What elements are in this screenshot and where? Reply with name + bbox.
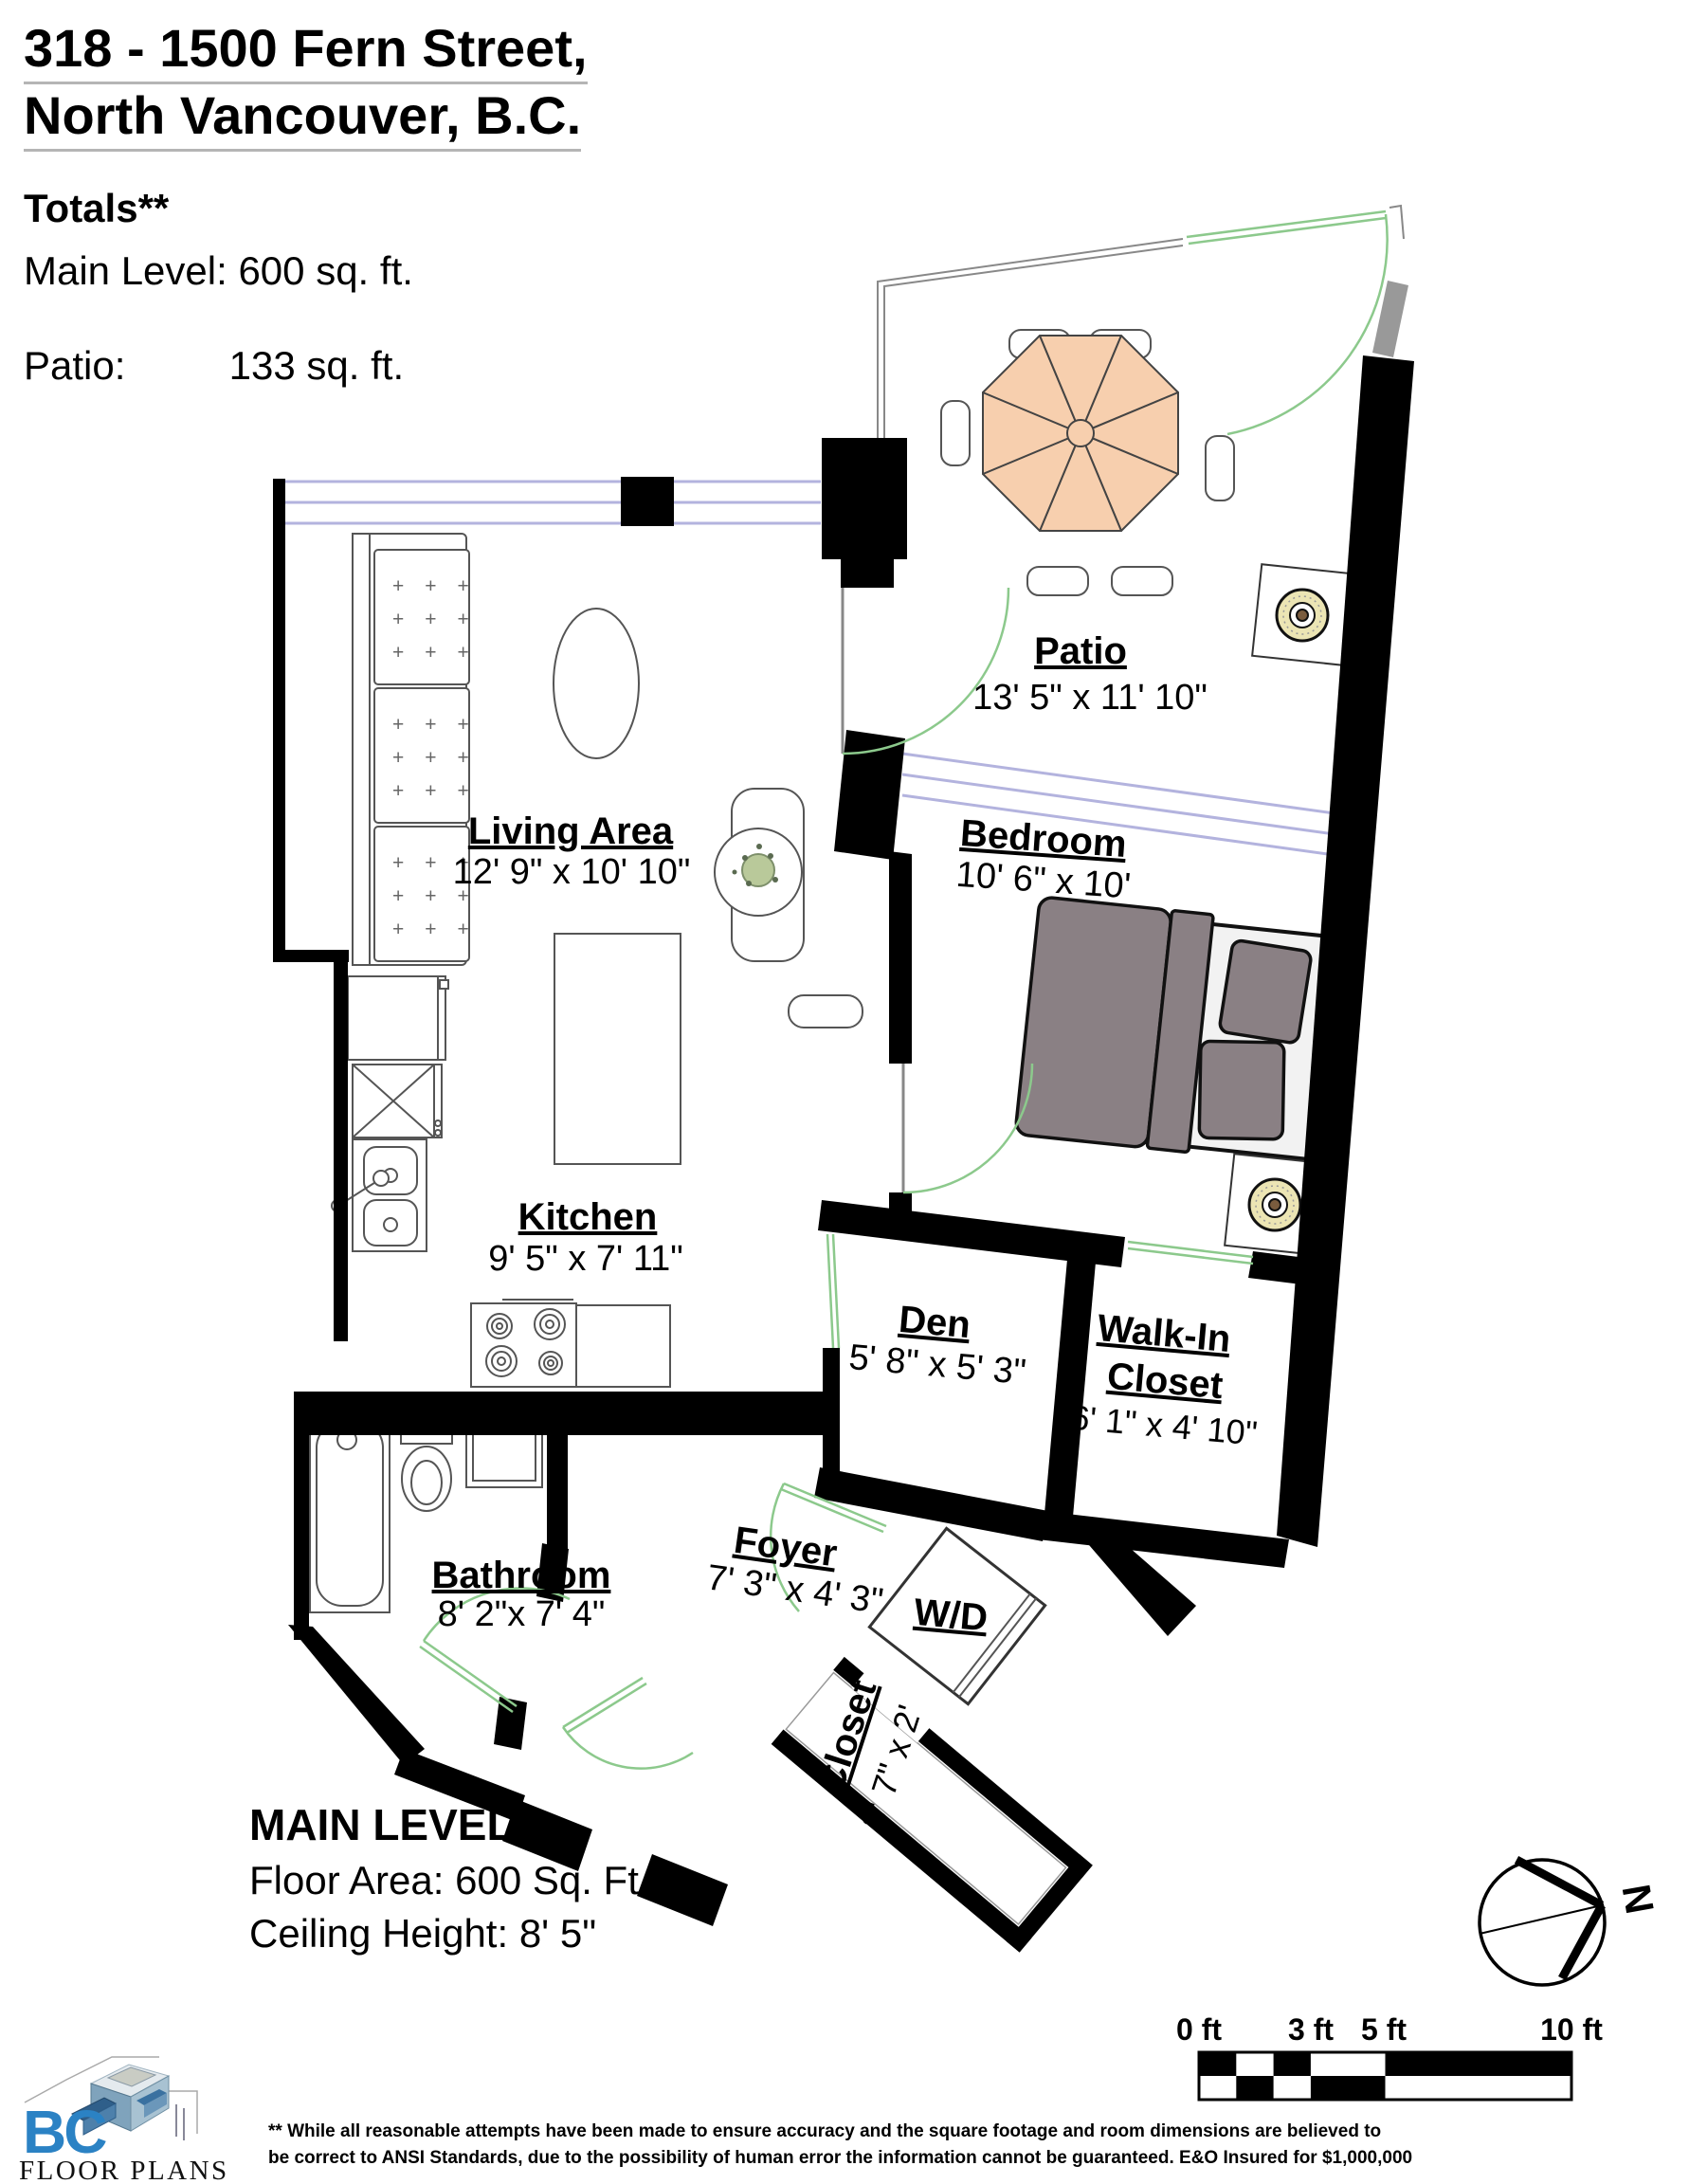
closet-interior (786, 1673, 1065, 1924)
scale-label-3: 3 ft (1288, 2012, 1334, 2047)
scale-label-0: 0 ft (1176, 2012, 1222, 2047)
room-label-patio: Patio (1034, 630, 1127, 672)
pillow (1199, 1041, 1284, 1139)
svg-text:+++: +++ (392, 714, 490, 736)
room-label-den: Den (898, 1299, 972, 1346)
living-patio-door-arc (843, 588, 1008, 754)
patio-chair (941, 401, 970, 465)
furniture-layer: +++++++++ +++++++++ +++++++++ (310, 330, 1353, 1924)
room-dims-walkin: 6' 1" x 4' 10" (1069, 1398, 1259, 1453)
disclaimer-line1: ** While all reasonable attempts have be… (268, 2121, 1381, 2142)
north-label: N (1614, 1881, 1663, 1917)
scale-label-10: 10 ft (1540, 2012, 1603, 2047)
fridge (348, 976, 448, 1060)
room-label-walkin-1: Walk-In (1096, 1307, 1232, 1360)
level-floor-area: Floor Area: 600 Sq. Ft. (249, 1858, 650, 1903)
room-dims-living: 12' 9" x 10' 10" (453, 852, 691, 892)
svg-text:+++: +++ (392, 919, 490, 940)
patio-umbrella (983, 336, 1178, 531)
patio-chair (1027, 567, 1088, 595)
svg-text:+++: +++ (392, 747, 490, 769)
disclaimer-line2: be correct to ANSI Standards, due to the… (268, 2148, 1412, 2169)
scale-label-5: 5 ft (1361, 2012, 1407, 2047)
bathtub (310, 1411, 390, 1612)
bedroom-door-arc (903, 1064, 1032, 1192)
level-title: MAIN LEVEL (249, 1799, 650, 1850)
room-dims-bathroom: 8' 2"x 7' 4" (438, 1594, 606, 1634)
plant-table (715, 789, 804, 961)
stove (471, 1300, 576, 1387)
room-label-bathroom: Bathroom (432, 1555, 611, 1596)
logo-floor-plans-text: FLOOR PLANS (19, 2156, 229, 2184)
sofa: +++++++++ +++++++++ +++++++++ (353, 534, 490, 965)
bed (1015, 897, 1354, 1167)
level-summary: MAIN LEVEL Floor Area: 600 Sq. Ft. Ceili… (249, 1799, 650, 1956)
compass-circle (1480, 1860, 1605, 1985)
svg-text:+++: +++ (392, 642, 490, 664)
room-dims-kitchen: 9' 5" x 7' 11" (488, 1239, 683, 1279)
svg-text:+++: +++ (392, 575, 490, 597)
nightstand (1252, 564, 1353, 665)
gray-wall-segment (1372, 281, 1408, 357)
room-dims-patio: 13' 5" x 11' 10" (972, 678, 1208, 718)
coffee-table (554, 609, 639, 758)
kitchen-counter (576, 1305, 670, 1387)
patio-chair (1206, 436, 1234, 500)
north-compass: N (1480, 1860, 1662, 1985)
dining-chair (789, 995, 863, 1028)
entry-door-arc (563, 1727, 693, 1769)
room-label-wd: W/D (912, 1592, 989, 1640)
patio-chair (1112, 567, 1172, 595)
patio-dining-set (941, 330, 1234, 595)
room-label-walkin-2: Closet (1105, 1356, 1225, 1407)
svg-text:+++: +++ (392, 609, 490, 630)
pillow (1219, 939, 1312, 1044)
pantry-cabinet (353, 1065, 442, 1137)
svg-text:+++: +++ (392, 780, 490, 802)
floor-plan-page: 318 - 1500 Fern Street, North Vancouver,… (0, 0, 1689, 2184)
scale-bar-segments (1199, 2052, 1571, 2100)
level-ceiling-height: Ceiling Height: 8' 5" (249, 1911, 650, 1956)
room-dims-den: 5' 8" x 5' 3" (847, 1338, 1027, 1392)
scale-bar: 0 ft 3 ft 5 ft 10 ft (1176, 2012, 1603, 2100)
room-label-living: Living Area (468, 810, 674, 852)
room-label-kitchen: Kitchen (518, 1196, 658, 1238)
bc-floor-plans-logo: BC FLOOR PLANS (17, 2044, 235, 2184)
kitchen-island (554, 934, 681, 1164)
